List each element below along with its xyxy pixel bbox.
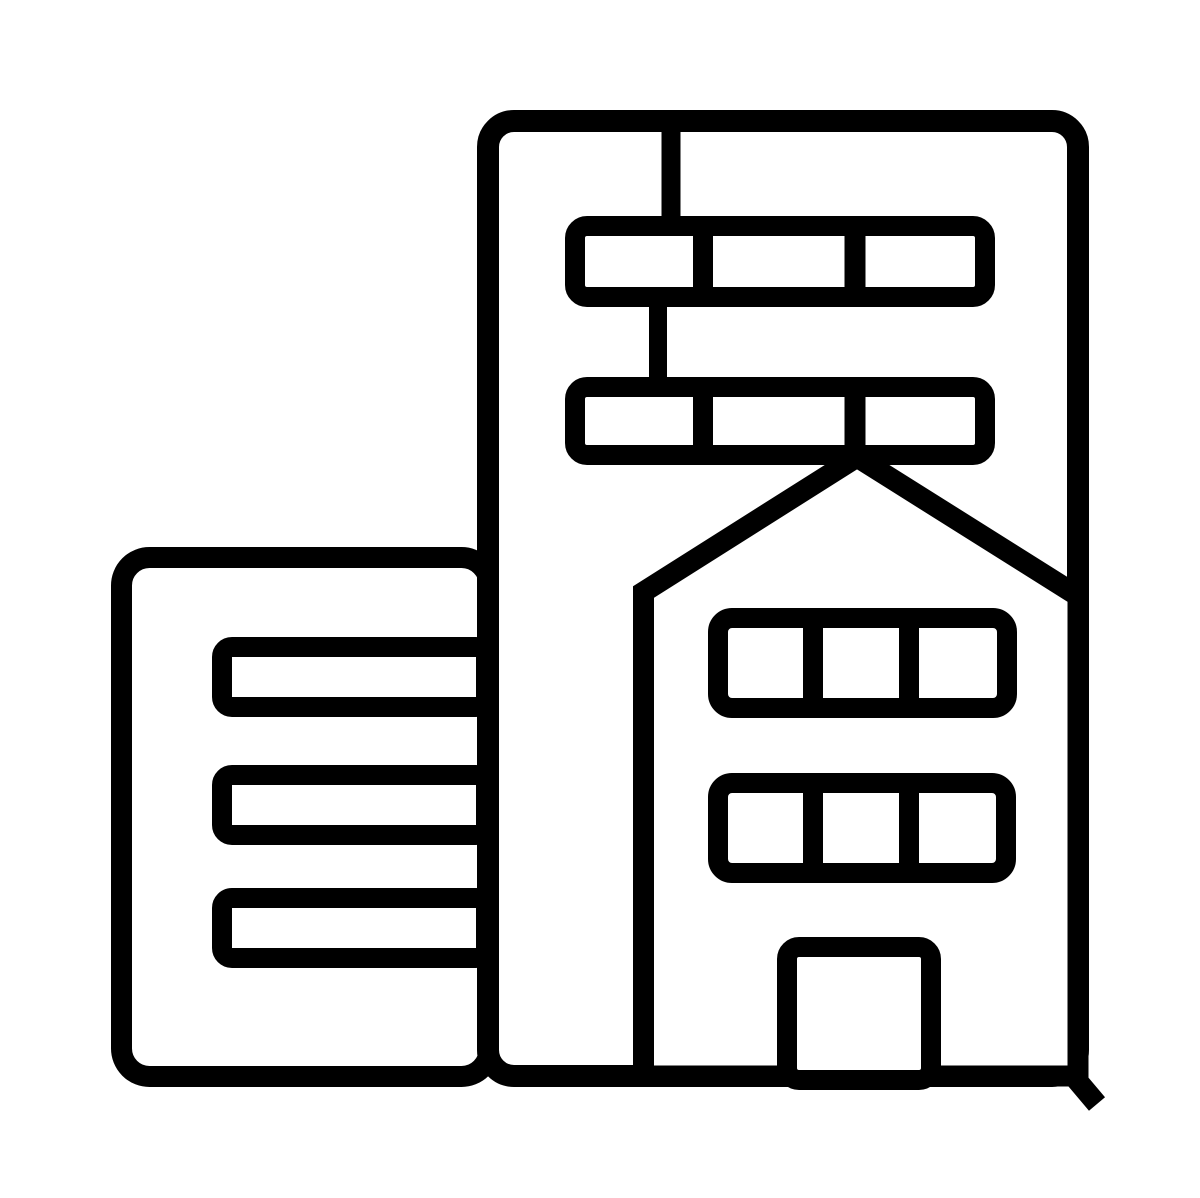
left-building-window-bar-2 [222,775,486,835]
left-building-window-bar-3 [222,898,486,958]
baseline-tail [1070,1072,1097,1104]
buildings-icon [0,0,1200,1198]
house-door [787,947,931,1080]
left-building-window-bar-1 [222,647,486,707]
icon-canvas [0,0,1200,1198]
